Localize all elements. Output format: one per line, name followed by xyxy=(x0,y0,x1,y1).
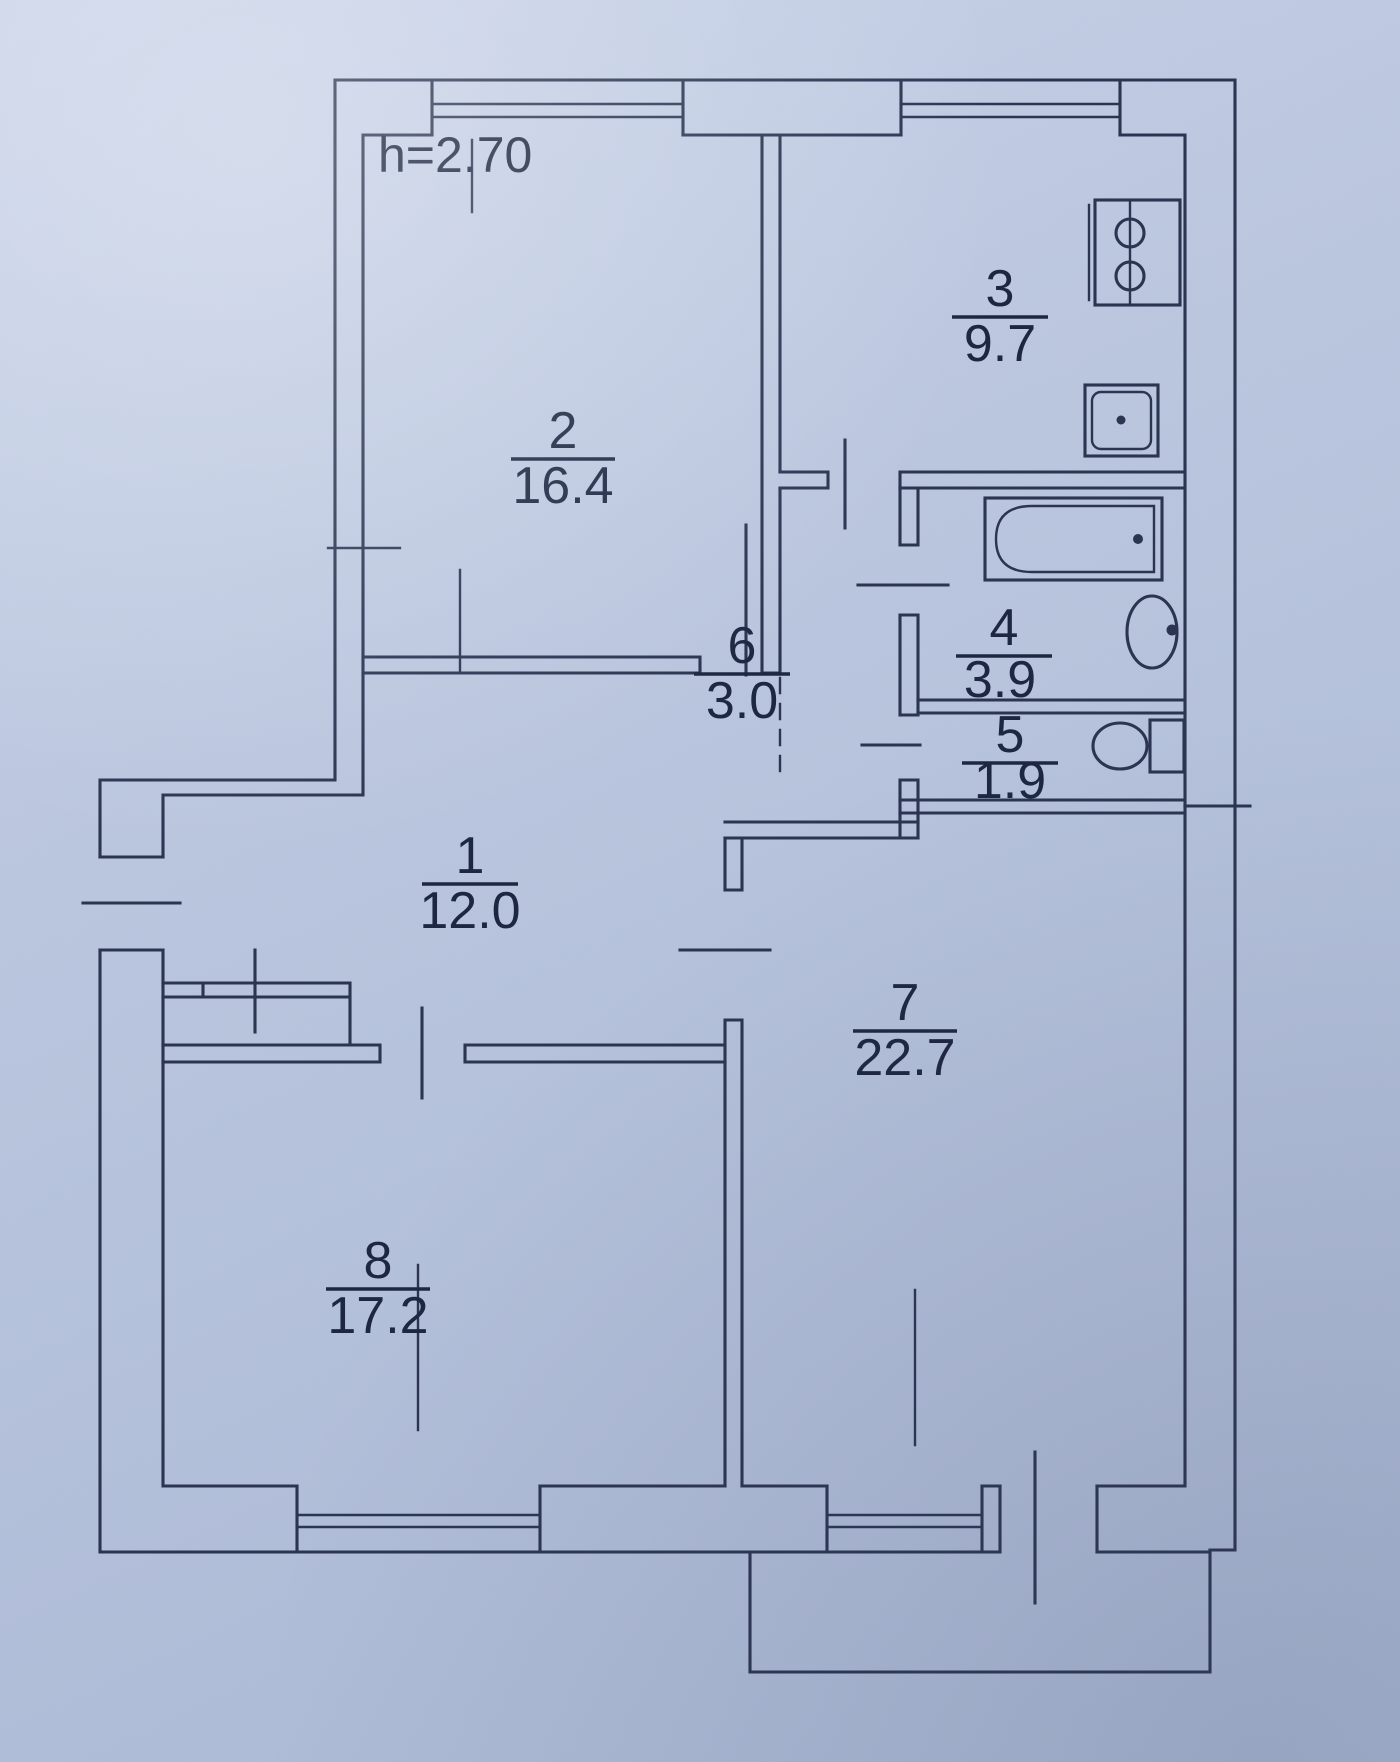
ceiling-height-label: h=2.70 xyxy=(378,127,532,183)
room-area: 16.4 xyxy=(512,457,613,515)
room-area: 1.9 xyxy=(974,752,1046,810)
room-number: 1 xyxy=(456,827,485,885)
floor-plan-photo: h=2.70 1 12.0 2 16.4 3 9.7 4 3.9 5 1.9 xyxy=(0,0,1400,1762)
room-number: 7 xyxy=(891,974,920,1032)
room-number: 4 xyxy=(990,599,1019,657)
room-area: 3.9 xyxy=(964,651,1036,709)
paper-grain xyxy=(0,0,1400,1762)
room-number: 6 xyxy=(728,617,757,675)
room-area: 12.0 xyxy=(419,882,520,940)
room-area: 3.0 xyxy=(706,672,778,730)
floor-plan: h=2.70 1 12.0 2 16.4 3 9.7 4 3.9 5 1.9 xyxy=(0,0,1400,1762)
room-area: 9.7 xyxy=(964,315,1036,373)
room-number: 3 xyxy=(986,260,1015,318)
room-number: 8 xyxy=(364,1232,393,1290)
room-area: 22.7 xyxy=(854,1029,955,1087)
room-number: 2 xyxy=(549,402,578,460)
room-area: 17.2 xyxy=(327,1287,428,1345)
